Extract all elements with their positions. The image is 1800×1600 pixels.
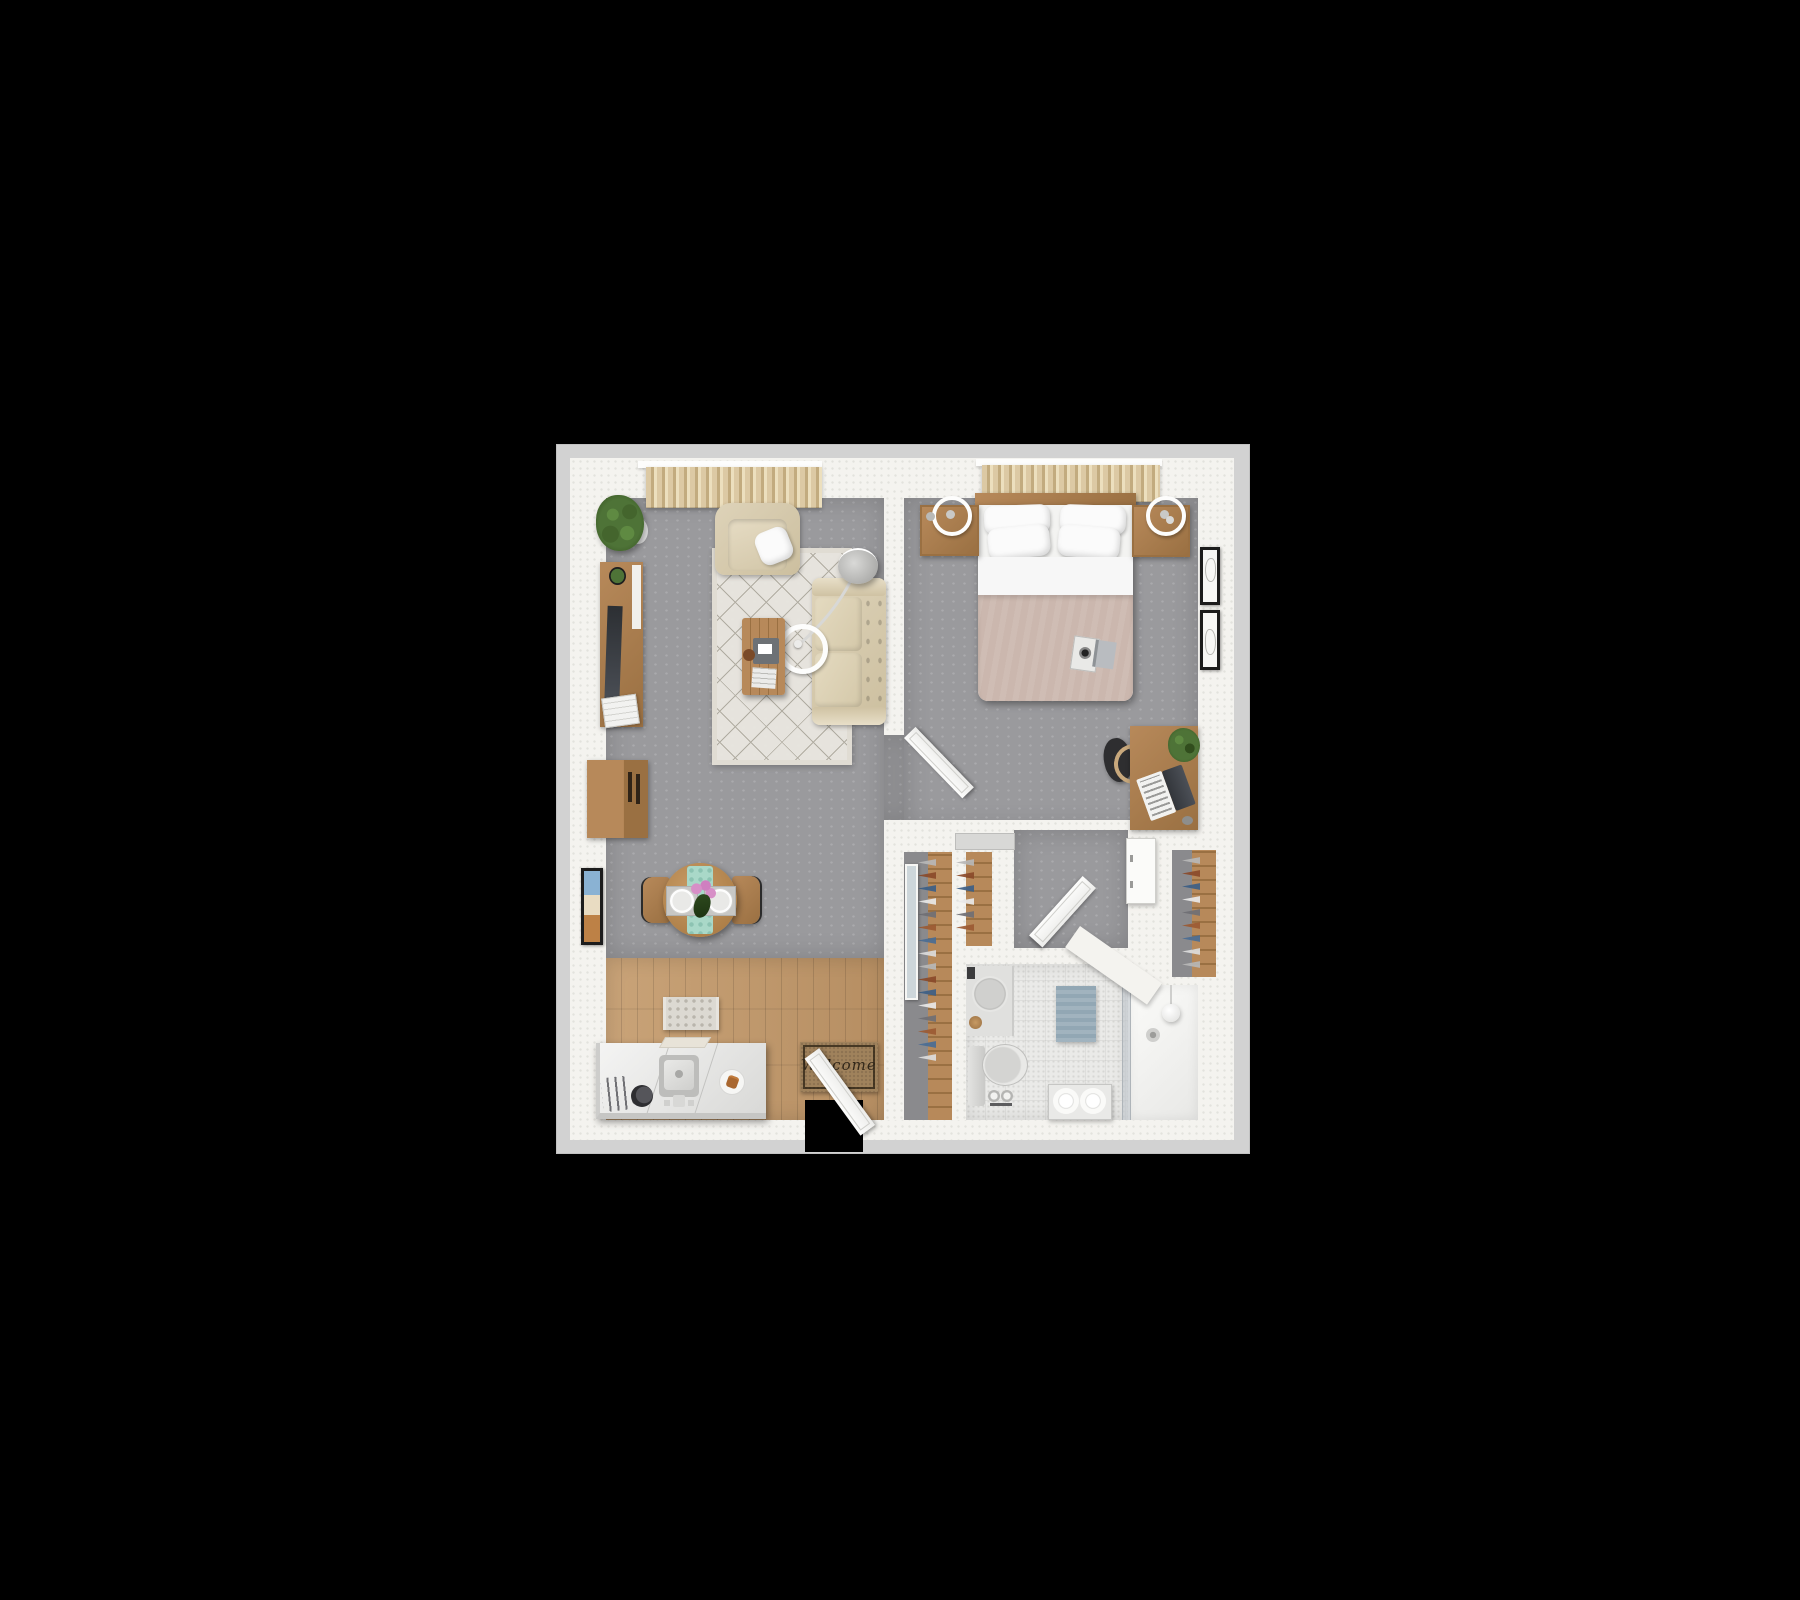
hanging-clothes-left	[918, 854, 936, 1062]
nightstand-cup	[1166, 516, 1174, 524]
curtains-living	[646, 467, 822, 508]
tv-console	[600, 562, 643, 727]
sink	[659, 1055, 699, 1097]
hanging-clothes-middle	[956, 854, 974, 932]
wall-sconce-left-icon	[932, 496, 972, 536]
floor-plan-scene: Welcome	[0, 0, 1800, 1600]
shower-floor	[1128, 985, 1198, 1120]
nightstand-vase	[926, 512, 935, 521]
console-shelf	[632, 565, 641, 629]
desk	[1130, 726, 1198, 830]
wall-art-bedroom-1	[1200, 547, 1220, 605]
bed-pillow-3	[986, 523, 1051, 561]
tv-screen	[604, 606, 622, 702]
tray-card	[758, 644, 772, 654]
table-papers	[751, 667, 776, 689]
bed-sheet	[978, 557, 1133, 599]
desk-plant-icon	[1168, 728, 1200, 762]
bed	[978, 505, 1133, 701]
wardrobe-middle	[966, 852, 992, 946]
towel-roll-1	[1053, 1088, 1079, 1114]
small-rug	[663, 997, 719, 1030]
shower-drain-icon	[1146, 1028, 1160, 1042]
printer-icon	[601, 694, 640, 729]
mouse-icon	[1182, 816, 1193, 825]
toilet-paper-stand	[988, 1088, 1014, 1108]
kitchen-island	[596, 1043, 766, 1119]
laptop-icon	[1136, 763, 1198, 821]
wall-cabinet	[1126, 838, 1156, 904]
standing-mirror	[905, 864, 918, 1000]
bed-pillow-4	[1057, 523, 1122, 560]
arc-lamp-shade-icon	[838, 548, 878, 584]
wall-sconce-right-icon	[1146, 496, 1186, 536]
console-plant-icon	[609, 567, 626, 585]
ring-lamp-bulb	[794, 640, 802, 648]
table-coaster	[743, 649, 755, 661]
hanging-clothes-right	[1182, 852, 1200, 969]
bath-mat	[1056, 986, 1096, 1042]
toilet-bowl	[982, 1044, 1028, 1086]
pendant-light-icon	[1162, 1004, 1180, 1022]
vanity	[966, 966, 1014, 1036]
vanity-basin	[972, 976, 1008, 1012]
dividing-wall-upper	[884, 488, 904, 735]
bedroom-doorway-floor	[884, 735, 904, 820]
bookcase-slots	[628, 772, 632, 802]
bookcase	[587, 760, 648, 838]
toilet-tank	[968, 1046, 985, 1106]
sofa-armrest-bottom	[812, 707, 886, 725]
ring-lamp-base-icon	[778, 624, 828, 674]
wall-art-bedroom-2	[1200, 610, 1220, 670]
vanity-stool	[969, 1016, 982, 1029]
wall-art-living	[581, 868, 603, 945]
toaster-icon	[600, 1076, 628, 1112]
coffee-grinder-icon	[631, 1085, 653, 1107]
soap-bottle-icon	[967, 967, 975, 979]
cutting-board	[659, 1037, 711, 1048]
hall-cabinet-top	[955, 833, 1015, 850]
towel-roll-2	[1080, 1088, 1106, 1114]
plate-croissant	[719, 1069, 745, 1095]
table-tray	[753, 638, 779, 664]
wardrobe-right-niche	[1192, 850, 1216, 977]
cabinet-handle-1	[1130, 855, 1133, 862]
sink-drain	[675, 1070, 683, 1078]
wardrobe-left	[928, 852, 952, 1120]
towel-bench	[1048, 1084, 1112, 1120]
book-on-bed	[1092, 640, 1117, 670]
cabinet-handle-2	[1130, 881, 1133, 888]
coffee-table	[742, 618, 785, 695]
glass-shower-screen	[1122, 985, 1131, 1120]
corner-plant-icon	[596, 495, 644, 551]
faucet-icon	[673, 1095, 685, 1107]
croissant-icon	[725, 1074, 739, 1089]
